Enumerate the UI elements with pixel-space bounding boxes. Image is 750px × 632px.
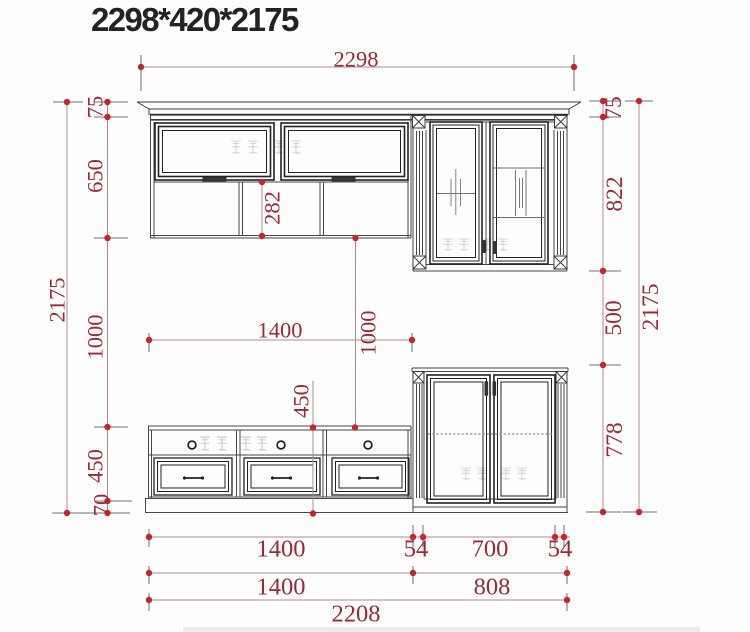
svg-text:2208: 2208 bbox=[332, 601, 381, 628]
svg-text:70: 70 bbox=[89, 494, 114, 517]
svg-text:1400: 1400 bbox=[257, 574, 306, 601]
svg-text:700: 700 bbox=[472, 536, 509, 563]
svg-text:822: 822 bbox=[602, 176, 628, 211]
svg-text:1400: 1400 bbox=[257, 536, 306, 563]
svg-text:808: 808 bbox=[474, 574, 511, 601]
svg-text:2298: 2298 bbox=[334, 47, 379, 72]
svg-text:650: 650 bbox=[83, 159, 108, 193]
svg-text:1000: 1000 bbox=[356, 311, 381, 356]
svg-text:2175: 2175 bbox=[45, 278, 70, 323]
svg-text:450: 450 bbox=[289, 384, 314, 418]
svg-text:282: 282 bbox=[260, 191, 285, 225]
svg-text:2175: 2175 bbox=[638, 284, 664, 331]
svg-text:778: 778 bbox=[602, 422, 628, 457]
svg-text:75: 75 bbox=[83, 96, 108, 119]
svg-text:1400: 1400 bbox=[258, 318, 303, 343]
svg-text:450: 450 bbox=[83, 449, 108, 483]
svg-text:75: 75 bbox=[601, 96, 627, 120]
svg-text:54: 54 bbox=[548, 536, 573, 563]
svg-text:1000: 1000 bbox=[83, 315, 108, 360]
svg-text:500: 500 bbox=[601, 300, 627, 335]
svg-text:54: 54 bbox=[404, 536, 429, 563]
svg-text:2298*420*2175: 2298*420*2175 bbox=[91, 1, 299, 38]
